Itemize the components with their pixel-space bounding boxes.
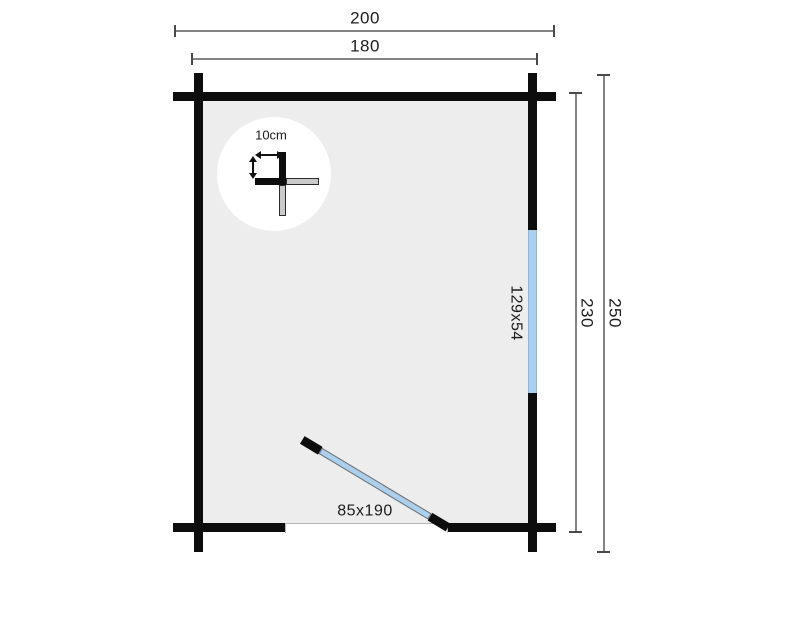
height-arrow-down-icon bbox=[249, 173, 257, 179]
wall-bottom-left bbox=[173, 523, 285, 532]
height-arrow-up-icon bbox=[249, 156, 257, 162]
inner-depth-label: 230 bbox=[579, 298, 596, 328]
detail-wall-horizontal-gray bbox=[286, 178, 319, 185]
window-bar bbox=[528, 230, 537, 393]
outer-depth-label: 250 bbox=[607, 298, 624, 328]
wall-right-upper bbox=[528, 73, 537, 230]
outer-depth-top-tick bbox=[597, 74, 610, 76]
outer-width-right-tick bbox=[553, 25, 555, 37]
outer-depth-bottom-tick bbox=[597, 551, 610, 553]
inner-depth-top-tick bbox=[569, 92, 582, 94]
inner-width-left-tick bbox=[191, 53, 193, 65]
width-arrow-line bbox=[260, 154, 278, 156]
inner-width-dimension-line bbox=[192, 58, 537, 60]
wall-thickness-label: 10cm bbox=[255, 129, 287, 142]
outer-width-label: 200 bbox=[350, 10, 380, 27]
inner-width-right-tick bbox=[536, 53, 538, 65]
wall-top bbox=[173, 92, 556, 101]
inner-depth-bottom-tick bbox=[569, 531, 582, 533]
inner-width-label: 180 bbox=[350, 38, 380, 55]
window-size-label: 129x54 bbox=[508, 285, 525, 341]
width-arrow-right-icon bbox=[277, 151, 283, 159]
detail-wall-vertical-gray bbox=[279, 185, 286, 216]
outer-width-dimension-line bbox=[175, 30, 554, 32]
door-opening bbox=[285, 523, 448, 533]
detail-wall-horizontal-black bbox=[255, 178, 286, 185]
wall-bottom-right bbox=[448, 523, 556, 532]
outer-width-left-tick bbox=[174, 25, 176, 37]
floor-plan-canvas: 200 180 230 250 129x54 85x190 10cm bbox=[0, 0, 800, 622]
door-size-label: 85x190 bbox=[337, 503, 393, 520]
wall-left bbox=[194, 73, 203, 552]
